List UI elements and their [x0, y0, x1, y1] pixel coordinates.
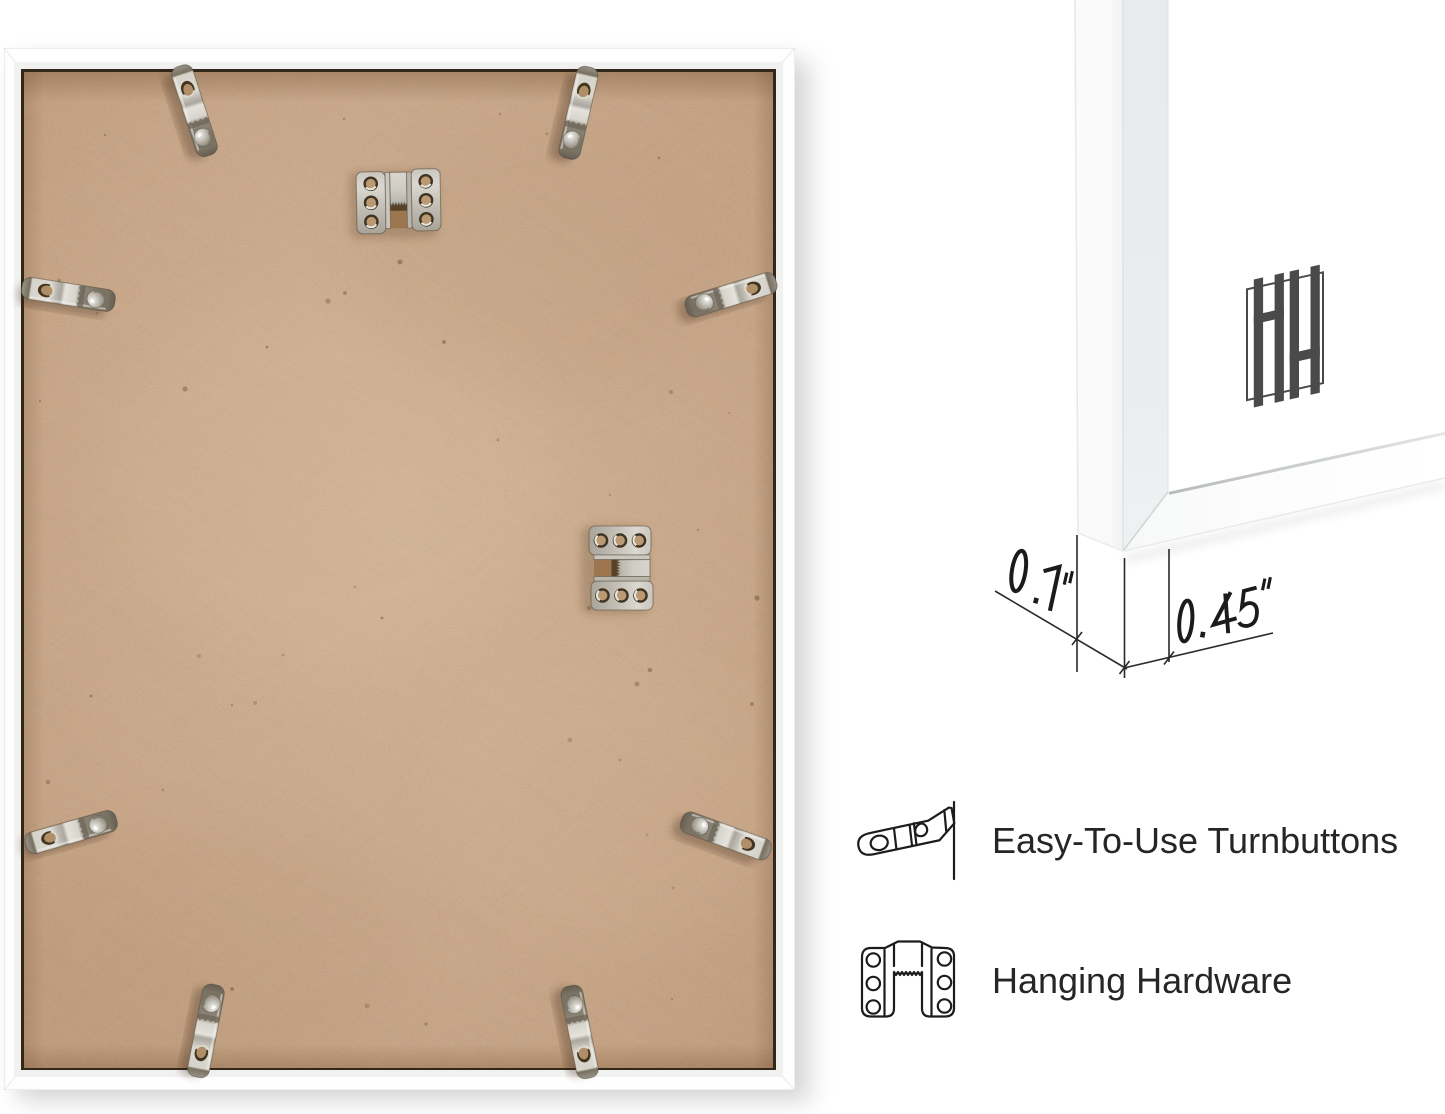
svg-text:Hanging Hardware: Hanging Hardware	[992, 960, 1292, 1001]
svg-text:Easy-To-Use Turnbuttons: Easy-To-Use Turnbuttons	[992, 820, 1398, 861]
